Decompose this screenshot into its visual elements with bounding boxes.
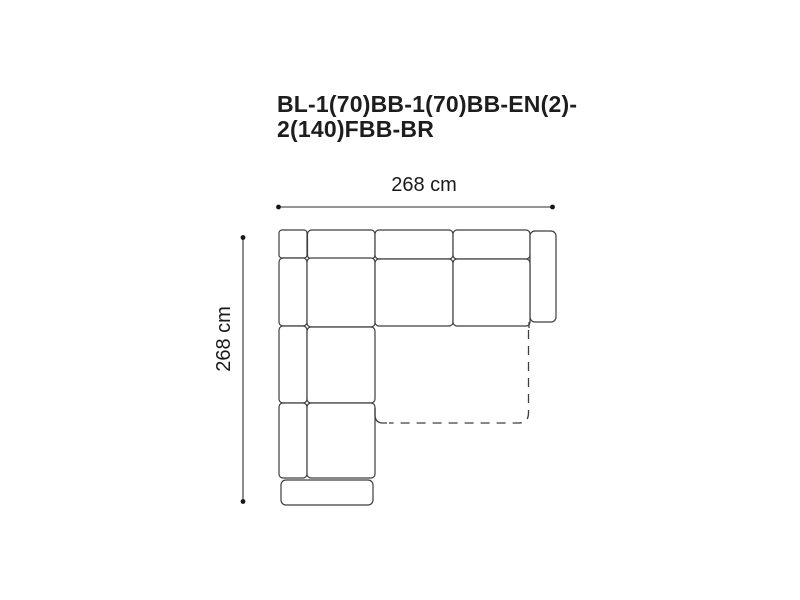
- diagram-canvas: BL-1(70)BB-1(70)BB-EN(2)- 2(140)FBB-BR 2…: [0, 0, 800, 600]
- left-seat-cushion-2: [307, 327, 375, 403]
- bed-dashed-edges: [389, 330, 529, 423]
- corner-seat: [307, 258, 375, 327]
- corner-back-cushion: [279, 230, 307, 258]
- width-dim-dot-right: [550, 205, 555, 210]
- depth-dim-dot-bottom: [241, 499, 246, 504]
- left-back-cushion-1: [279, 258, 307, 326]
- left-back-cushion-3: [279, 403, 307, 478]
- bed-solid-corner-bottom-left: [375, 408, 387, 423]
- left-seat-cushion-3: [307, 403, 375, 478]
- depth-dim-dot-top: [241, 235, 246, 240]
- top-back-cushion-1: [308, 230, 376, 259]
- top-back-cushion-2: [375, 230, 453, 259]
- right-armrest: [530, 231, 556, 322]
- sofa-top-view-diagram: [0, 0, 800, 600]
- sofa-outline: [279, 230, 556, 505]
- top-back-cushion-3: [453, 230, 530, 259]
- left-back-cushion-2: [279, 326, 307, 403]
- fold-out-bed-outline: [375, 322, 529, 423]
- seat-cushion-2: [375, 259, 453, 326]
- front-armrest: [281, 480, 373, 505]
- width-dim-dot-left: [276, 205, 281, 210]
- seat-cushion-3: [453, 259, 530, 326]
